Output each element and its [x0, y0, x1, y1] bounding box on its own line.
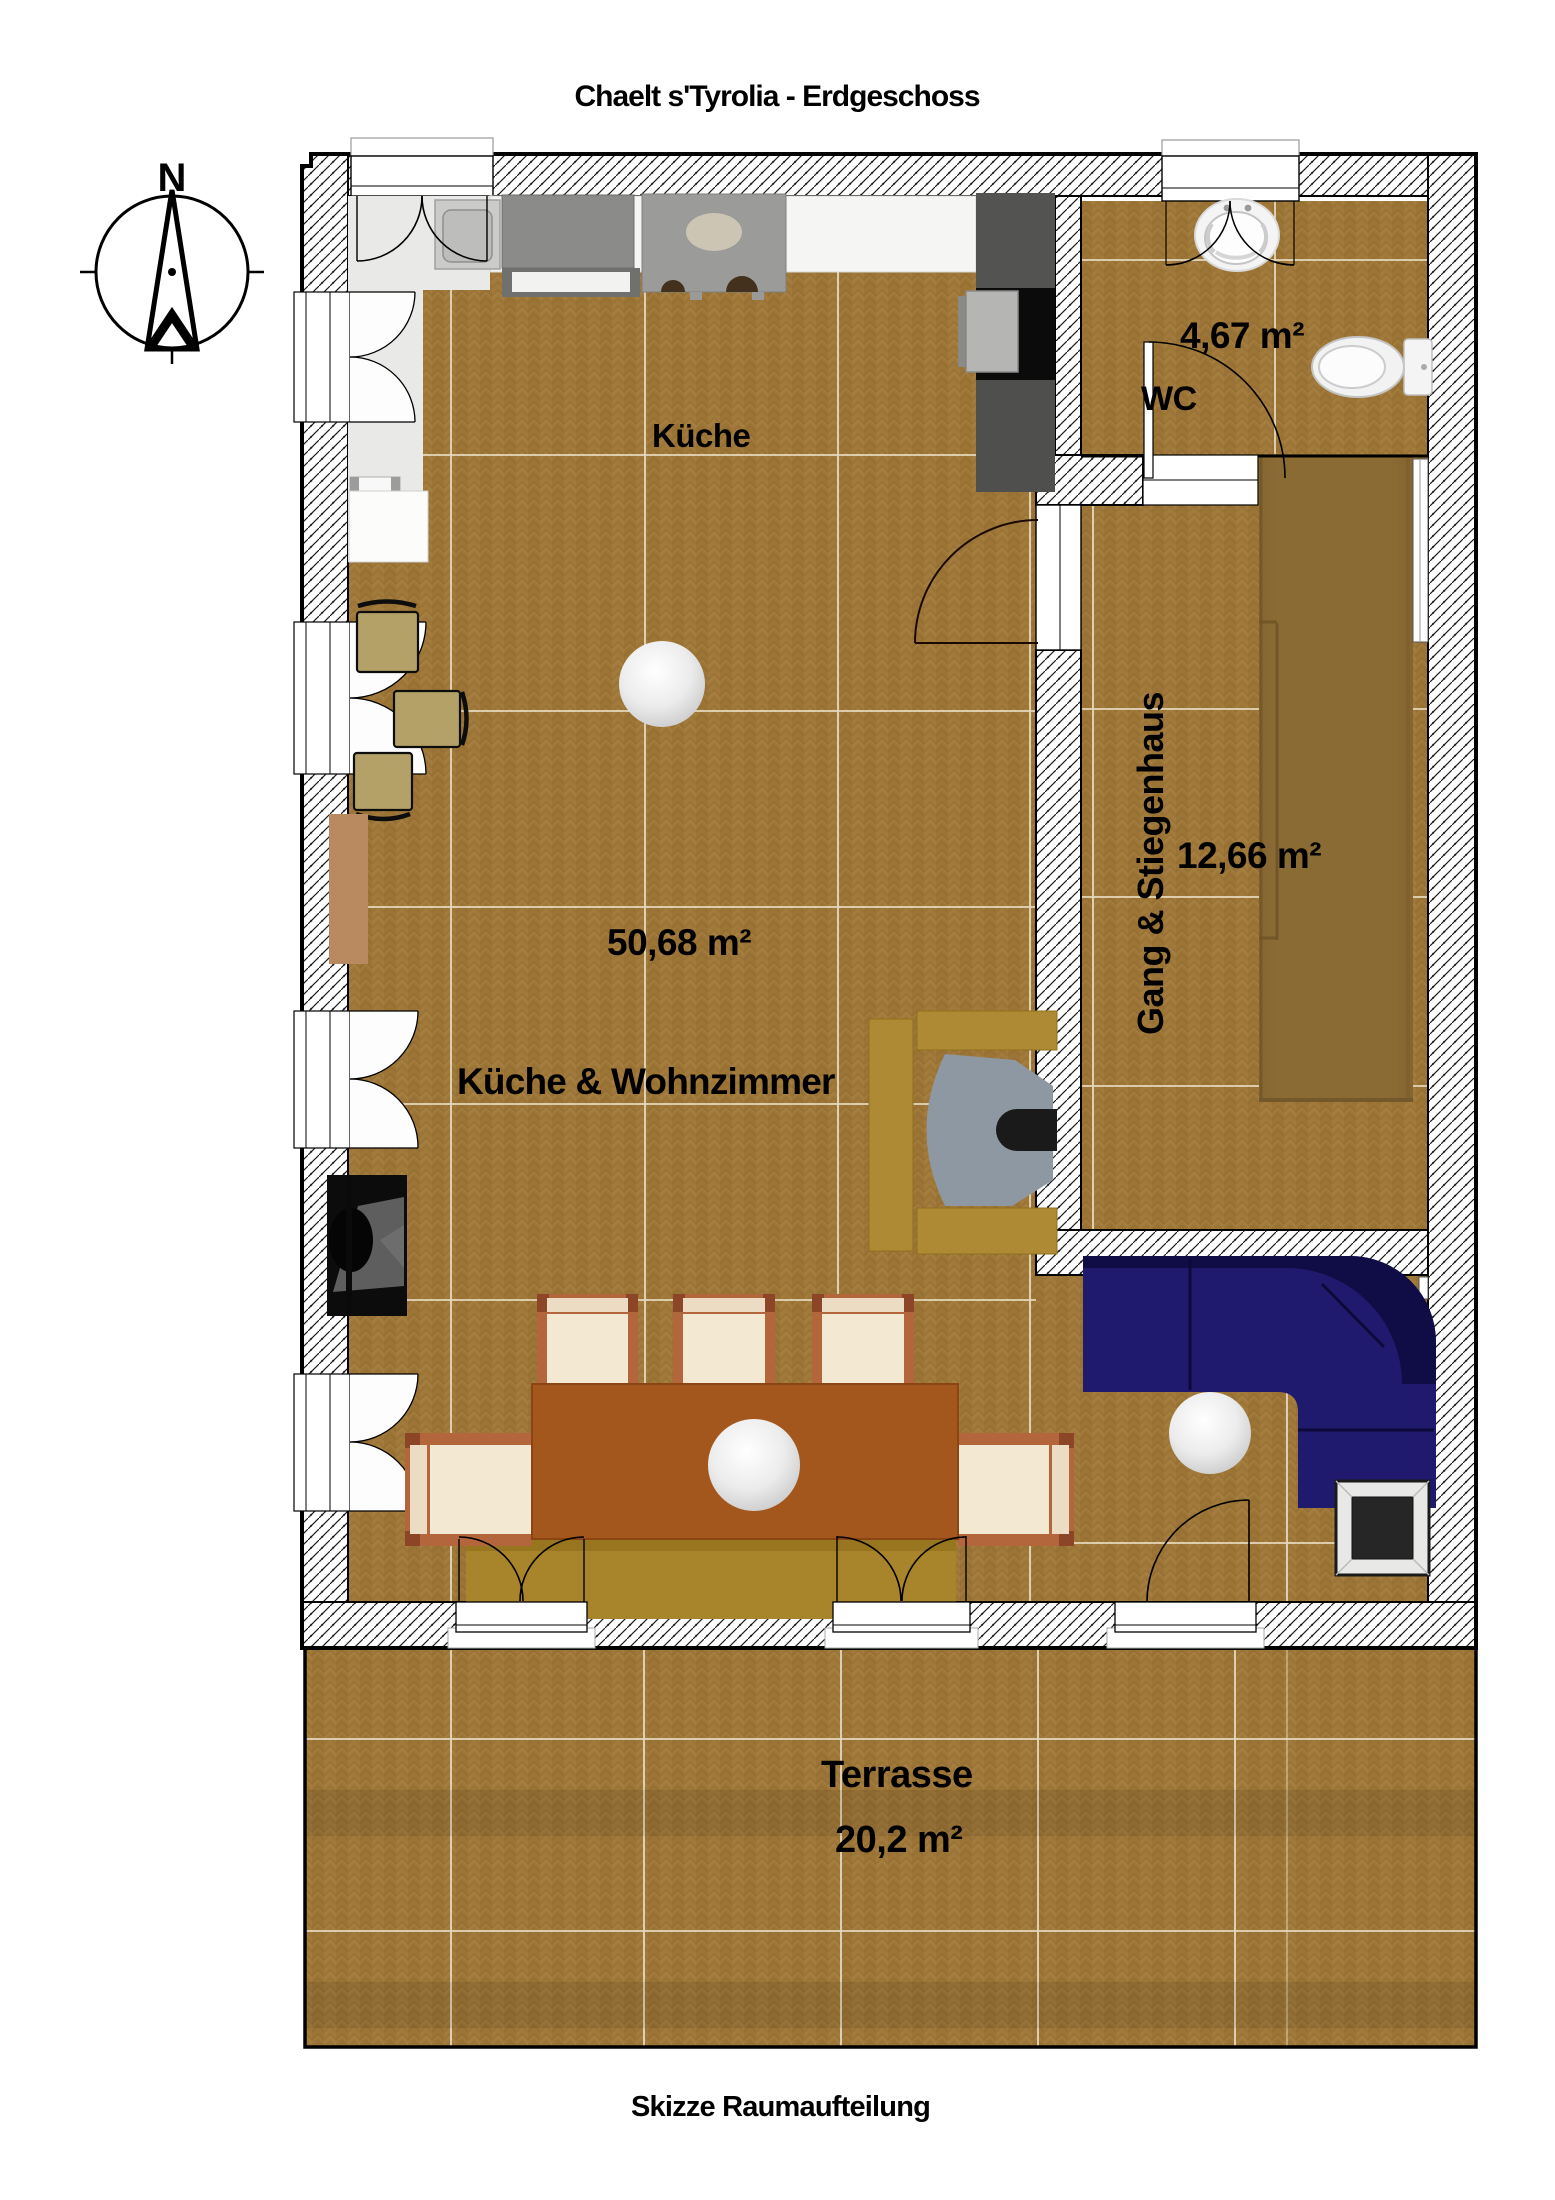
svg-text:Chaelt s'Tyrolia - Erdgeschoss: Chaelt s'Tyrolia - Erdgeschoss — [574, 80, 979, 113]
svg-text:WC: WC — [1141, 380, 1197, 418]
svg-text:Skizze Raumaufteilung: Skizze Raumaufteilung — [631, 2091, 930, 2123]
svg-text:Küche: Küche — [652, 417, 751, 454]
svg-text:20,2 m²: 20,2 m² — [835, 1819, 962, 1861]
svg-text:Küche & Wohnzimmer: Küche & Wohnzimmer — [457, 1061, 835, 1102]
svg-text:50,68 m²: 50,68 m² — [607, 922, 751, 963]
svg-text:Terrasse: Terrasse — [821, 1754, 973, 1796]
svg-text:Gang & Stiegenhaus: Gang & Stiegenhaus — [1130, 692, 1171, 1035]
svg-text:4,67 m²: 4,67 m² — [1180, 315, 1304, 356]
svg-text:12,66 m²: 12,66 m² — [1177, 835, 1321, 876]
svg-text:N: N — [158, 156, 187, 200]
